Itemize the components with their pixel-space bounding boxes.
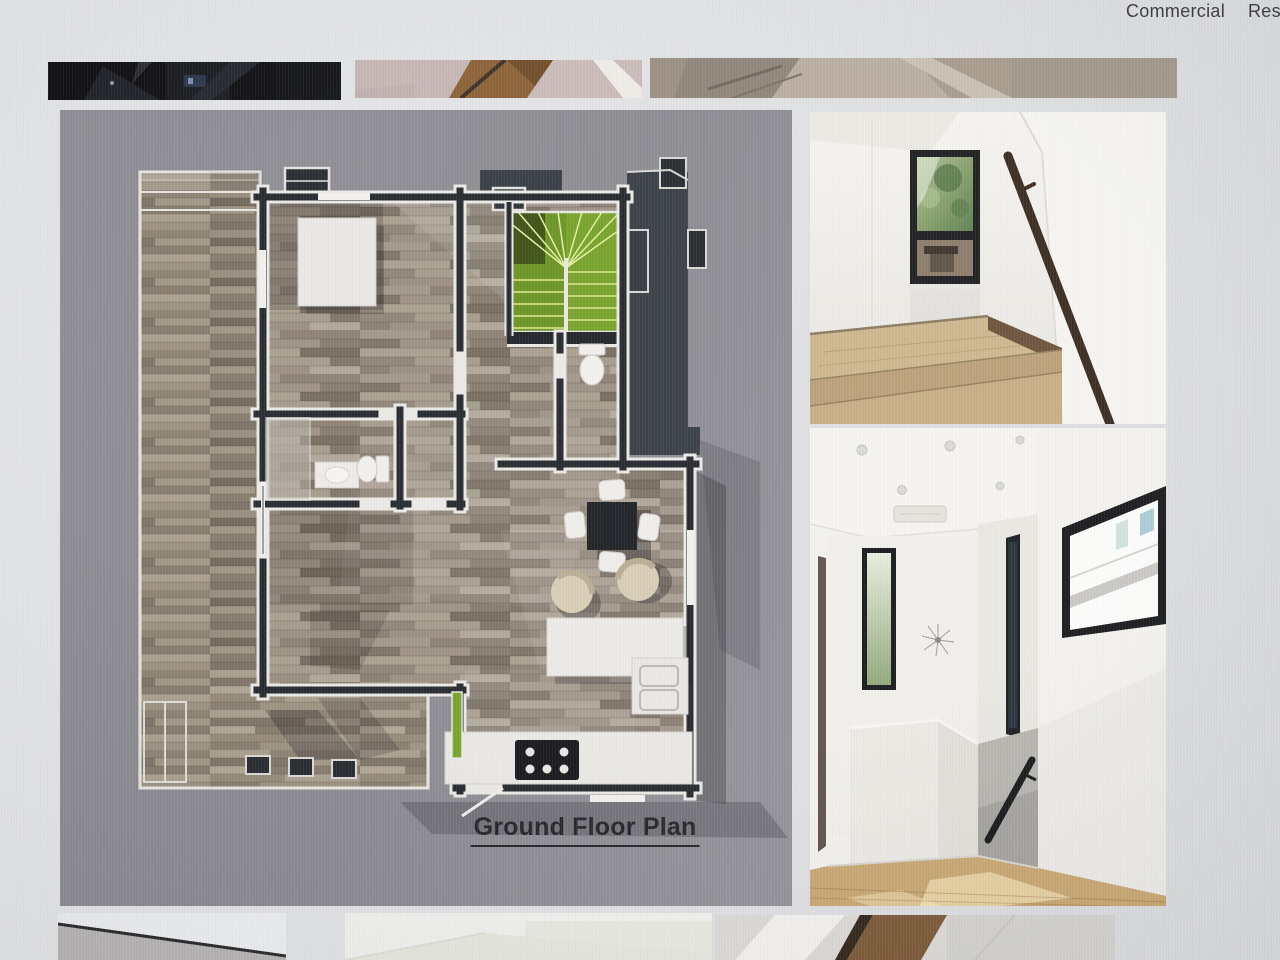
dark-interior-thumbnail-image xyxy=(48,62,341,100)
stair-landing-photo-image xyxy=(810,112,1166,424)
photo-stair-landing[interactable] xyxy=(810,112,1166,424)
floor-plan-caption: Ground Floor Plan xyxy=(471,813,700,847)
ceiling-line-thumbnail-image xyxy=(58,913,286,960)
green-staircase xyxy=(507,212,625,347)
roof-mass xyxy=(627,158,706,455)
top-thumbnail-dark-interior[interactable] xyxy=(48,62,341,100)
floor-plan-panel: Ground Floor Plan xyxy=(60,110,792,906)
powder-room-toilet xyxy=(579,344,605,385)
upper-hallway-photo-image xyxy=(810,428,1166,906)
pony-wall xyxy=(850,720,978,870)
photo-upper-hallway[interactable] xyxy=(810,428,1166,906)
page: Commercial Residential xyxy=(0,0,1280,960)
bottom-thumbnail-pale-interior[interactable] xyxy=(345,913,712,960)
end-window xyxy=(862,548,896,690)
top-thumbnail-stairwell[interactable] xyxy=(650,58,1177,98)
wood-stair-thumbnail-image xyxy=(355,60,642,98)
stairwell-opening xyxy=(978,728,1038,868)
nav-item-commercial[interactable]: Commercial xyxy=(1126,1,1225,22)
pale-interior-thumbnail-image xyxy=(345,913,712,960)
stair-landing-floor xyxy=(810,316,1062,424)
stair-window xyxy=(908,150,982,289)
deck-posts xyxy=(246,756,356,778)
living-room-rug xyxy=(298,218,384,314)
top-nav: Commercial Residential xyxy=(0,0,1280,28)
floor-plan-image[interactable] xyxy=(60,110,792,906)
bottom-thumbnail-stair-beam[interactable] xyxy=(715,915,1115,960)
stairwell-thumbnail-image xyxy=(650,58,1177,98)
nav-item-residential[interactable]: Residential xyxy=(1248,1,1280,22)
bottom-thumbnail-ceiling-line[interactable] xyxy=(58,913,286,960)
stair-beam-thumbnail-image xyxy=(715,915,1115,960)
top-thumbnail-wood-stair[interactable] xyxy=(355,60,642,98)
left-door-edge xyxy=(818,556,826,852)
